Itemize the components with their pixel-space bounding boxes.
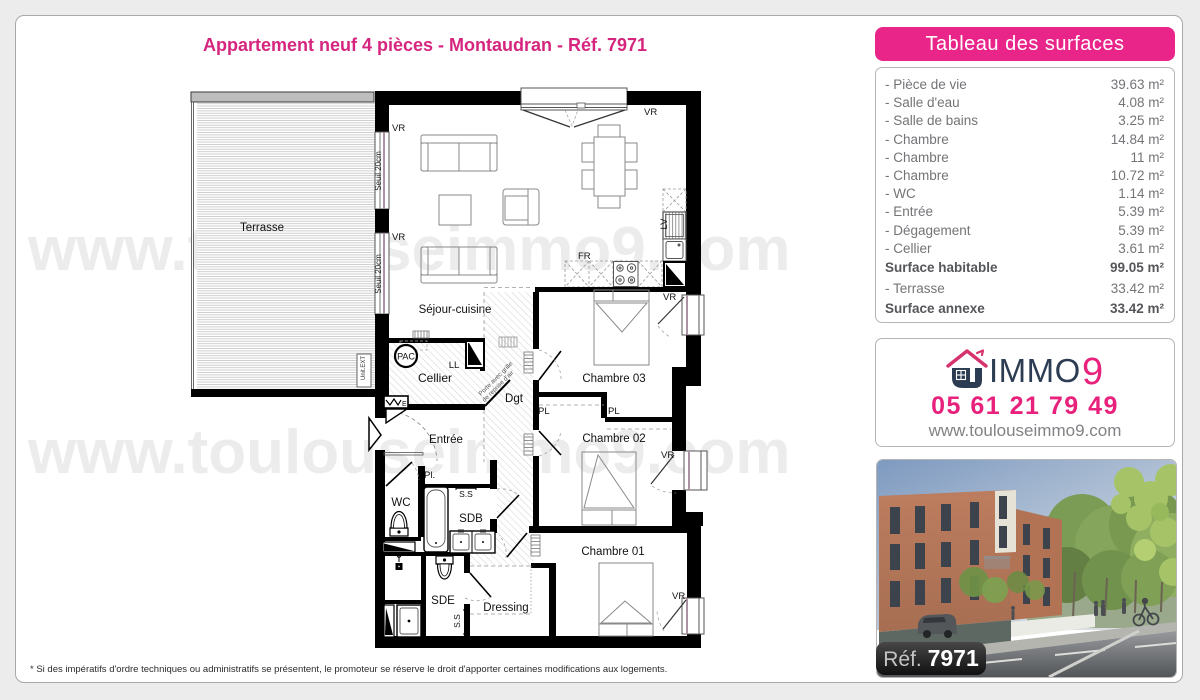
svg-text:LV: LV <box>659 218 670 230</box>
svg-text:S.S: S.S <box>459 489 473 499</box>
svg-text:Séjour-cuisine: Séjour-cuisine <box>419 304 492 316</box>
svg-text:SDB: SDB <box>459 513 483 525</box>
svg-text:SDE: SDE <box>431 595 455 607</box>
svg-text:VR: VR <box>661 450 674 461</box>
svg-text:Entrée: Entrée <box>429 434 463 446</box>
svg-text:Chambre 02: Chambre 02 <box>582 433 645 445</box>
svg-text:WC: WC <box>391 497 410 509</box>
svg-text:Chambre 03: Chambre 03 <box>582 373 645 385</box>
svg-text:VR: VR <box>644 107 657 118</box>
svg-text:Cellier: Cellier <box>418 371 452 385</box>
svg-text:PL: PL <box>538 406 550 417</box>
svg-text:VR: VR <box>672 591 685 602</box>
svg-text:VR: VR <box>392 123 405 134</box>
svg-text:Dgt: Dgt <box>505 393 524 405</box>
svg-text:Dressing: Dressing <box>483 602 528 614</box>
svg-text:Pl.: Pl. <box>424 470 435 481</box>
svg-text:PAC: PAC <box>397 352 415 362</box>
svg-text:Seuil 20cm: Seuil 20cm <box>374 151 383 191</box>
svg-text:LL: LL <box>449 360 460 371</box>
svg-text:E: E <box>402 401 407 408</box>
svg-text:PL: PL <box>608 406 620 417</box>
svg-text:Chambre 01: Chambre 01 <box>581 546 644 558</box>
svg-text:S.S: S.S <box>452 614 462 628</box>
svg-text:9: 9 <box>1082 351 1103 391</box>
svg-text:IMMO: IMMO <box>989 352 1081 389</box>
svg-text:Terrasse: Terrasse <box>240 222 284 234</box>
svg-text:Unit.EXT: Unit.EXT <box>361 356 367 380</box>
svg-text:Seuil 20cm: Seuil 20cm <box>374 254 383 294</box>
svg-text:VR: VR <box>392 232 405 243</box>
svg-text:VR: VR <box>663 292 676 303</box>
svg-text:FR: FR <box>578 251 591 262</box>
